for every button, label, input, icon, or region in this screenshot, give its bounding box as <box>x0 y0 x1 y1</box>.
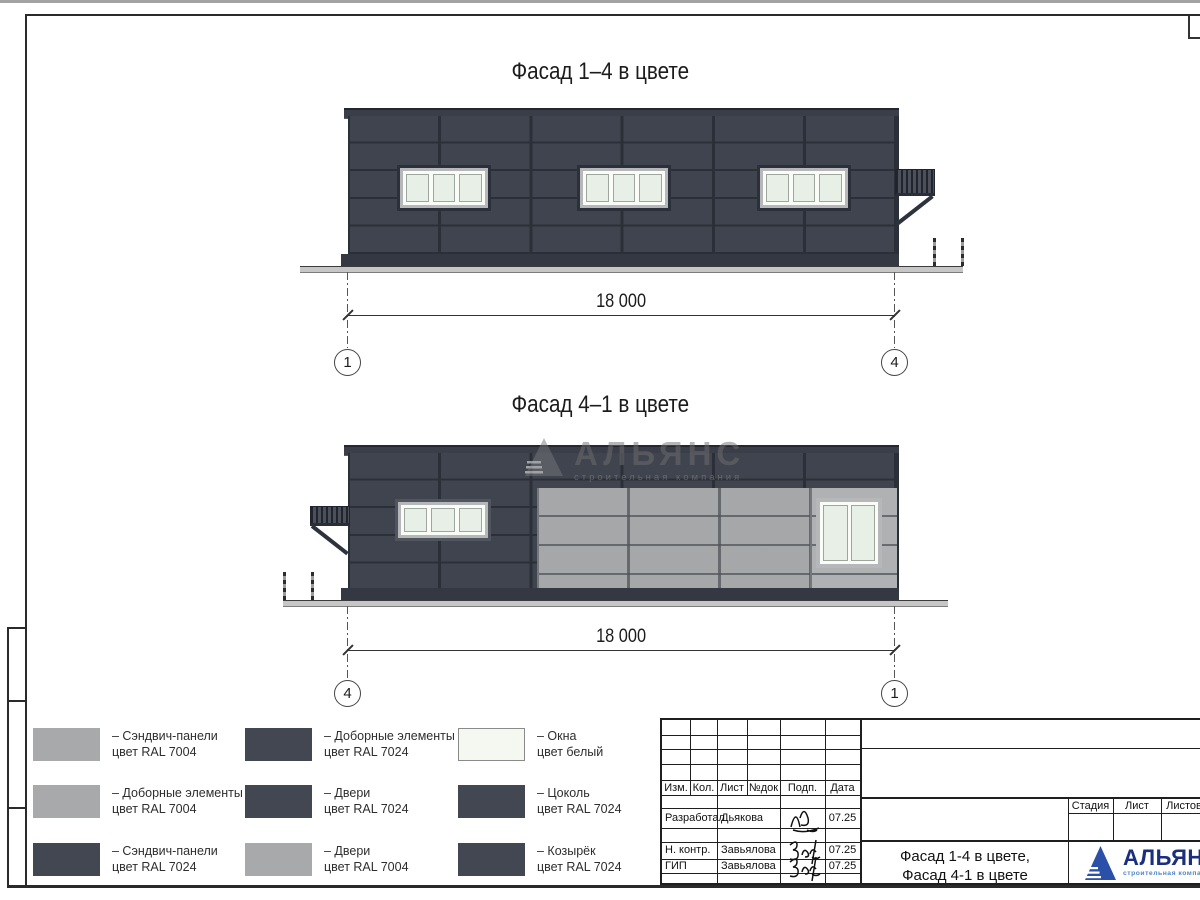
facade1-window-3 <box>757 165 851 211</box>
legend-label: – Доборные элементыцвет RAL 7004 <box>112 785 243 817</box>
facade2-axis-bubble-left: 4 <box>334 680 361 707</box>
window-pane <box>404 508 427 532</box>
legend-label: – Доборные элементыцвет RAL 7024 <box>324 728 455 760</box>
legend-label: – Цокольцвет RAL 7024 <box>537 785 622 817</box>
facade1-window-2 <box>577 165 671 211</box>
frame-margin-divider <box>7 807 25 809</box>
window-pane <box>586 174 609 202</box>
watermark-tagline: строительная компания <box>574 472 745 483</box>
facade1-ground-line <box>300 266 963 273</box>
titleblock-header-cell: Изм. <box>662 782 690 794</box>
facade2-dimension-line <box>348 650 895 651</box>
frame-margin-line <box>7 627 9 885</box>
facade1-post <box>961 238 964 266</box>
legend-swatch <box>33 843 100 876</box>
window-pane <box>613 174 636 202</box>
titleblock-line <box>662 795 860 796</box>
legend-swatch <box>33 728 100 761</box>
facade1-axis-bubble-left: 1 <box>334 349 361 376</box>
legend-swatch <box>458 728 525 761</box>
facade1-title: Фасад 1–4 в цвете <box>0 58 1200 86</box>
axis-number: 4 <box>890 354 898 371</box>
facade2-canopy-strut <box>311 524 349 555</box>
legend-label: – Сэндвич-панелицвет RAL 7004 <box>112 728 218 760</box>
window-pane <box>766 174 789 202</box>
legend-swatch <box>245 843 312 876</box>
legend-item: – Сэндвич-панелицвет RAL 7004 <box>33 728 238 768</box>
legend-item: – Козырёкцвет RAL 7024 <box>458 843 663 883</box>
watermark-name: АЛЬЯНС <box>574 437 745 471</box>
legend-label: – Сэндвич-панелицвет RAL 7024 <box>112 843 218 875</box>
signature-icon <box>787 803 823 833</box>
legend-swatch <box>245 785 312 818</box>
watermark-pyramid-icon <box>524 437 564 477</box>
legend-label: – Козырёкцвет RAL 7024 <box>537 843 622 875</box>
frame-bottom-line <box>7 885 1200 888</box>
window-pane <box>639 174 662 202</box>
stage-header-cell: Лист <box>1113 800 1161 812</box>
titleblock-header-cell: Дата <box>825 782 860 794</box>
titleblock-role: ГИП <box>665 860 687 872</box>
facade2-window-left <box>395 499 491 541</box>
facade2-dimension-label: 18 000 <box>348 626 895 648</box>
window-pane <box>851 505 876 561</box>
logo-name: АЛЬЯНС <box>1123 846 1200 869</box>
legend-item: – Доборные элементыцвет RAL 7024 <box>245 728 450 768</box>
legend-item: – Дверицвет RAL 7004 <box>245 843 450 883</box>
window-frame <box>395 499 491 541</box>
titleblock-line <box>662 842 860 843</box>
titleblock-line <box>662 735 860 736</box>
facade1-dimension-label: 18 000 <box>348 291 895 313</box>
window-pane <box>406 174 429 202</box>
frame-left-line <box>25 14 27 888</box>
titleblock-line <box>662 873 860 874</box>
axis-number: 1 <box>890 685 898 702</box>
frame-margin-divider <box>7 700 25 702</box>
legend-label: – Дверицвет RAL 7024 <box>324 785 409 817</box>
facade2-window-right <box>816 498 882 568</box>
window-frame <box>577 165 671 211</box>
company-logo: АЛЬЯНС строительная компания <box>1085 846 1200 880</box>
titleblock-header-cell: №док <box>747 782 780 794</box>
facade2-post <box>283 572 286 600</box>
facade2-canopy <box>310 506 350 526</box>
legend-item: – Цокольцвет RAL 7024 <box>458 785 663 825</box>
facade2-post <box>311 572 314 600</box>
facade1-dimension-line <box>348 315 895 316</box>
drawing-sheet: { "facade1": { "title": "Фасад 1–4 в цве… <box>0 0 1200 900</box>
facade1-canopy-strut <box>896 195 934 226</box>
facade1-drawing <box>344 108 899 272</box>
stage-header-cell: Стадия <box>1068 800 1113 812</box>
legend-swatch <box>33 785 100 818</box>
signature-icon <box>787 854 823 882</box>
titleblock-header-cell: Кол. <box>690 782 717 794</box>
titleblock-line <box>662 808 860 809</box>
titleblock-line <box>862 797 1200 799</box>
legend-label: – Окнацвет белый <box>537 728 603 760</box>
facade1-window-1 <box>397 165 491 211</box>
legend-swatch <box>458 843 525 876</box>
titleblock-line <box>662 749 860 750</box>
titleblock-header-cell: Лист <box>717 782 747 794</box>
facade2-axis-bubble-right: 1 <box>881 680 908 707</box>
titleblock-name: Завьялова <box>721 844 776 856</box>
window-pane <box>823 505 848 561</box>
titleblock-line <box>1068 813 1200 814</box>
window-pane <box>459 508 482 532</box>
window-pane <box>431 508 454 532</box>
frame-margin-divider <box>7 627 25 629</box>
titleblock-line <box>662 780 860 781</box>
legend-item: – Доборные элементыцвет RAL 7004 <box>33 785 238 825</box>
titleblock-line <box>662 764 860 765</box>
frame-corner-box <box>1188 16 1200 39</box>
window-frame <box>757 165 851 211</box>
document-title: Фасад 1-4 в цвете, Фасад 4-1 в цвете <box>862 847 1068 885</box>
stage-header-cell: Листов <box>1161 800 1200 812</box>
watermark: АЛЬЯНС строительная компания <box>524 437 745 483</box>
axis-number: 4 <box>343 685 351 702</box>
titleblock-line <box>862 840 1200 842</box>
logo-pyramid-icon <box>1085 846 1116 880</box>
legend-swatch <box>458 785 525 818</box>
titleblock-line <box>662 828 860 829</box>
legend-swatch <box>245 728 312 761</box>
frame-top-line <box>25 14 1200 16</box>
titleblock-role: Разработал <box>665 812 725 824</box>
titleblock-header-cell: Подп. <box>780 782 825 794</box>
window-pane <box>459 174 482 202</box>
titleblock-line <box>862 748 1200 749</box>
facade1-post <box>933 238 936 266</box>
window-frame <box>397 165 491 211</box>
titleblock-date: 07.25 <box>825 860 860 872</box>
legend-item: – Сэндвич-панелицвет RAL 7024 <box>33 843 238 883</box>
axis-number: 1 <box>343 354 351 371</box>
titleblock-name: Завьялова <box>721 860 776 872</box>
window-frame <box>816 498 882 568</box>
legend-item: – Дверицвет RAL 7024 <box>245 785 450 825</box>
titleblock-name: Дьякова <box>721 812 763 824</box>
title-block: Изм. Кол. Лист №док Подп. Дата Разработа… <box>660 718 1200 885</box>
window-pane <box>793 174 816 202</box>
legend-item: – Окнацвет белый <box>458 728 663 768</box>
legend-label: – Дверицвет RAL 7004 <box>324 843 409 875</box>
titleblock-role: Н. контр. <box>665 844 710 856</box>
logo-tagline: строительная компания <box>1123 870 1200 877</box>
facade1-axis-bubble-right: 4 <box>881 349 908 376</box>
titleblock-date: 07.25 <box>825 812 860 824</box>
facade2-light-panels-mid <box>537 488 812 588</box>
titleblock-date: 07.25 <box>825 844 860 856</box>
facade1-canopy <box>895 169 935 196</box>
window-pane <box>433 174 456 202</box>
screen-top-edge <box>0 0 1200 3</box>
facade2-title: Фасад 4–1 в цвете <box>0 391 1200 419</box>
facade2-ground-line <box>283 600 948 607</box>
window-pane <box>819 174 842 202</box>
